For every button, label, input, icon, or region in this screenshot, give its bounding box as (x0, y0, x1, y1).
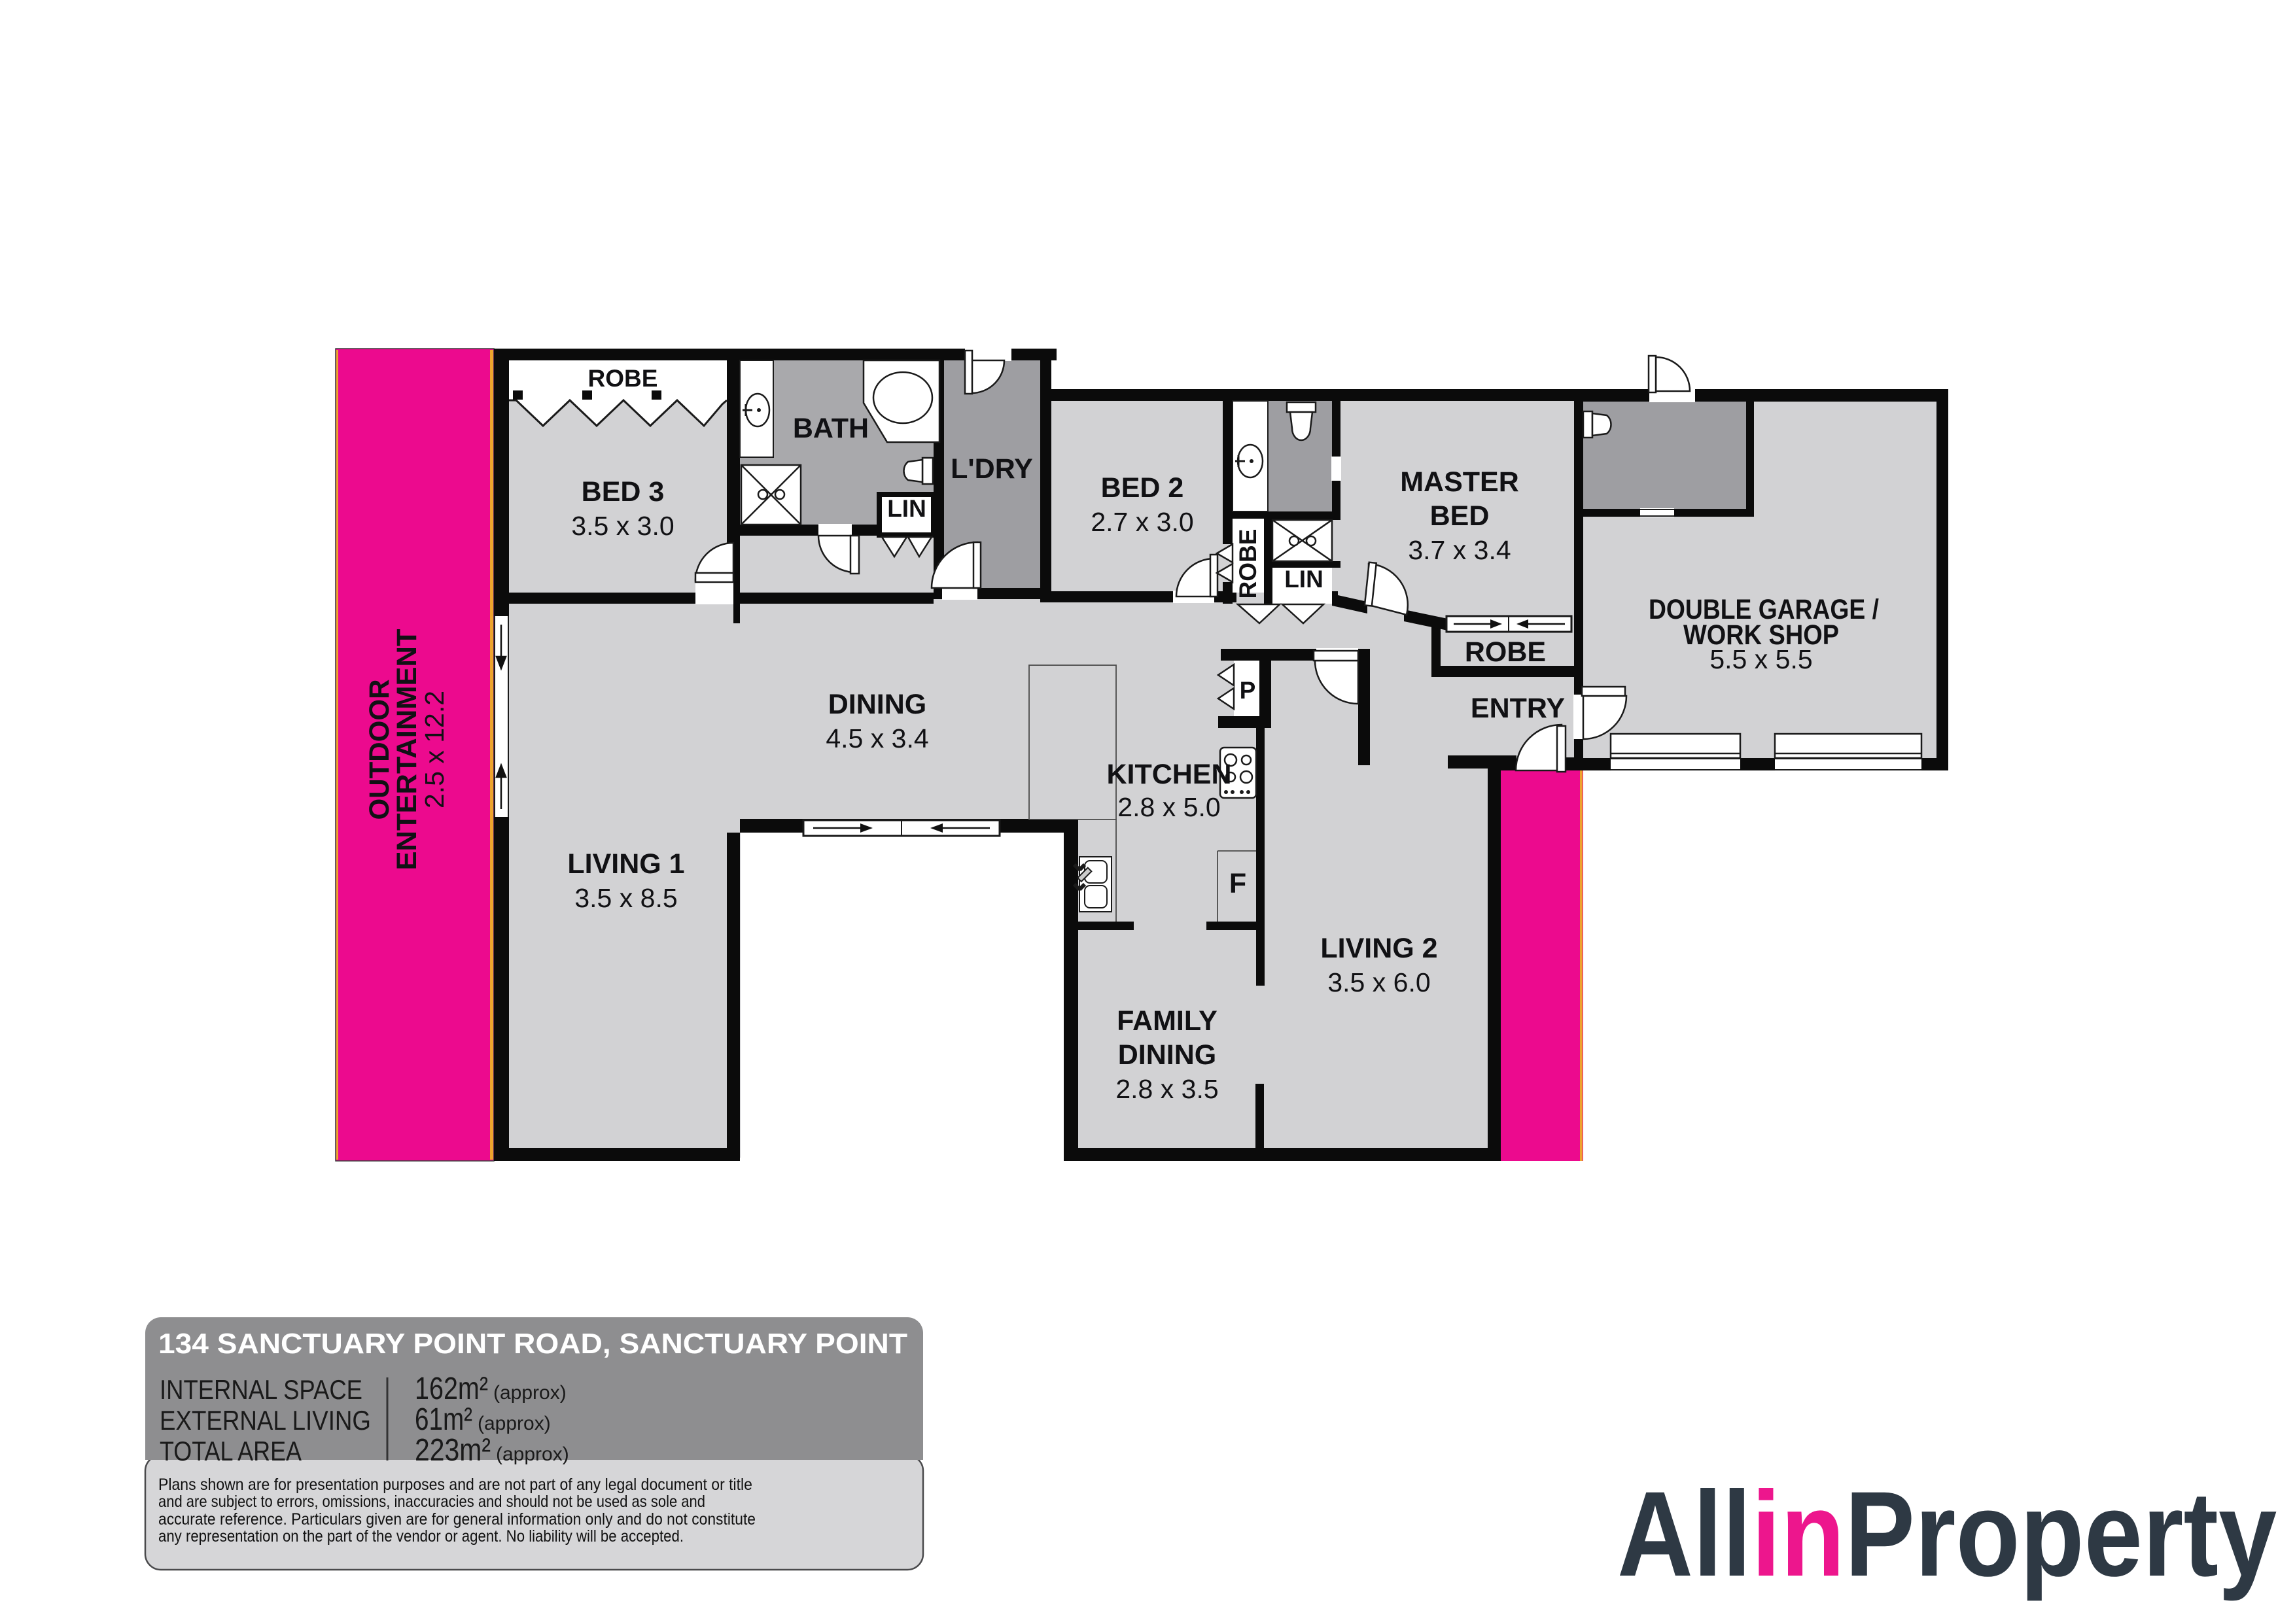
svg-text:KITCHEN: KITCHEN (1106, 759, 1231, 790)
svg-text:5.5 x 5.5: 5.5 x 5.5 (1709, 644, 1812, 674)
svg-text:(approx): (approx) (496, 1443, 569, 1465)
svg-text:DINING: DINING (1118, 1039, 1217, 1071)
svg-text:ROBE: ROBE (588, 365, 658, 392)
svg-text:INTERNAL SPACE: INTERNAL SPACE (160, 1374, 362, 1405)
svg-text:F: F (1229, 868, 1246, 899)
svg-text:DINING: DINING (828, 689, 927, 720)
svg-text:and are subject to errors, omi: and are subject to errors, omissions, in… (158, 1493, 705, 1511)
svg-text:LIN: LIN (887, 495, 926, 522)
svg-text:162m²: 162m² (415, 1372, 488, 1406)
svg-text:(approx): (approx) (478, 1413, 551, 1434)
svg-text:2.5 x 12.2: 2.5 x 12.2 (419, 691, 449, 808)
svg-text:BED: BED (1430, 500, 1490, 532)
svg-text:3.5 x 8.5: 3.5 x 8.5 (574, 883, 677, 913)
svg-text:61m²: 61m² (415, 1402, 472, 1437)
svg-text:BED 3: BED 3 (582, 476, 665, 508)
svg-text:P: P (1240, 677, 1256, 704)
svg-text:any representation on the part: any representation on the part of the ve… (158, 1527, 684, 1546)
svg-text:2.7 x 3.0: 2.7 x 3.0 (1091, 507, 1193, 537)
svg-text:(approx): (approx) (493, 1382, 567, 1404)
svg-text:EXTERNAL LIVING: EXTERNAL LIVING (160, 1405, 371, 1436)
svg-text:Plans shown are for presentati: Plans shown are for presentation purpose… (158, 1476, 752, 1494)
svg-text:223m²: 223m² (415, 1433, 491, 1468)
svg-text:MASTER: MASTER (1400, 466, 1519, 498)
svg-text:ROBE: ROBE (1465, 636, 1546, 668)
svg-text:LIVING 2: LIVING 2 (1320, 933, 1437, 964)
svg-text:2.8 x 5.0: 2.8 x 5.0 (1117, 792, 1220, 822)
svg-text:AllinProperty: AllinProperty (1617, 1466, 2277, 1601)
svg-text:L'DRY: L'DRY (951, 453, 1033, 485)
svg-text:ROBE: ROBE (1235, 529, 1261, 599)
svg-text:TOTAL AREA: TOTAL AREA (160, 1436, 302, 1466)
svg-text:3.7 x 3.4: 3.7 x 3.4 (1408, 535, 1511, 565)
svg-text:3.5 x 3.0: 3.5 x 3.0 (571, 511, 674, 541)
svg-text:ENTRY: ENTRY (1471, 693, 1565, 724)
svg-text:accurate reference. Particular: accurate reference. Particulars given ar… (158, 1510, 756, 1529)
svg-text:134 SANCTUARY POINT ROAD, SANC: 134 SANCTUARY POINT ROAD, SANCTUARY POIN… (158, 1328, 907, 1360)
svg-text:BATH: BATH (793, 413, 869, 444)
svg-text:ENTERTAINMENT: ENTERTAINMENT (391, 629, 423, 871)
svg-text:4.5 x 3.4: 4.5 x 3.4 (826, 723, 928, 753)
svg-text:2.8 x 3.5: 2.8 x 3.5 (1115, 1074, 1218, 1104)
svg-text:3.5 x 6.0: 3.5 x 6.0 (1327, 967, 1430, 997)
svg-text:LIN: LIN (1284, 566, 1323, 593)
svg-text:LIVING 1: LIVING 1 (567, 848, 684, 880)
svg-text:OUTDOOR: OUTDOOR (364, 680, 395, 820)
svg-text:BED 2: BED 2 (1101, 472, 1184, 504)
svg-text:FAMILY: FAMILY (1117, 1005, 1218, 1037)
